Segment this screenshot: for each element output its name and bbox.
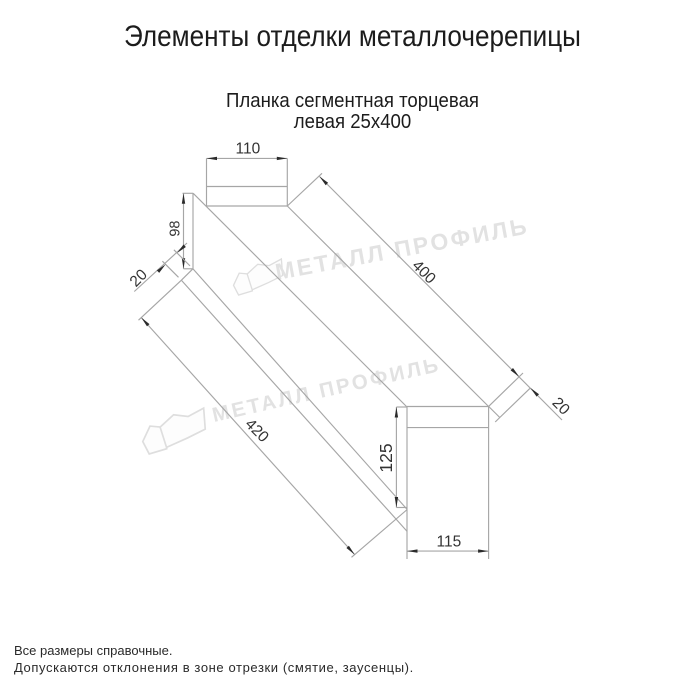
svg-text:98: 98 (168, 221, 184, 237)
svg-text:125: 125 (376, 443, 396, 472)
svg-text:115: 115 (437, 534, 462, 551)
svg-text:110: 110 (236, 140, 261, 157)
